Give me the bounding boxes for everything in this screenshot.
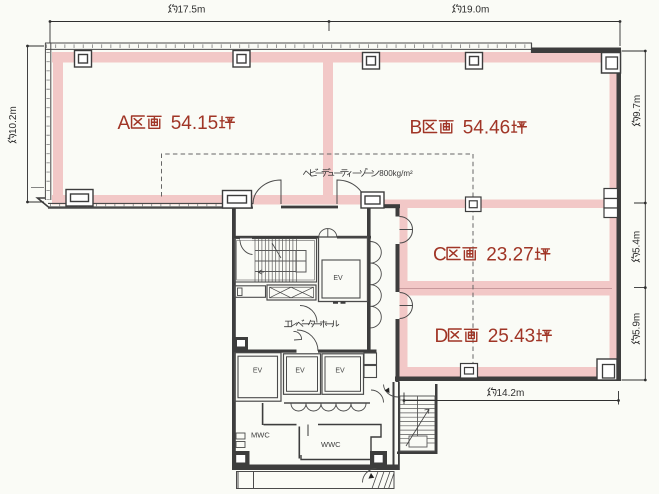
svg-text:19.0m: 19.0m [462,4,490,15]
svg-text:EV: EV [333,275,343,282]
svg-text:17.5m: 17.5m [178,4,206,15]
svg-text:800kg/m²: 800kg/m² [379,169,413,178]
svg-text:54.46: 54.46 [463,118,511,139]
svg-text:B: B [410,118,423,139]
svg-text:A: A [118,113,131,134]
svg-text:MWC: MWC [251,431,270,440]
svg-text:EV: EV [295,368,305,375]
svg-text:9.7m: 9.7m [632,95,643,117]
svg-text:25.43: 25.43 [488,326,536,347]
svg-text:C: C [433,245,447,266]
svg-text:10.2m: 10.2m [8,106,19,134]
svg-text:D: D [435,326,449,347]
svg-text:54.15: 54.15 [171,113,219,134]
svg-text:14.2m: 14.2m [497,388,525,399]
svg-text:23.27: 23.27 [486,245,534,266]
svg-text:5.4m: 5.4m [632,231,643,253]
svg-text:WWC: WWC [321,440,341,449]
svg-text:EV: EV [335,368,345,375]
svg-text:EV: EV [253,368,263,375]
svg-text:5.9m: 5.9m [632,313,643,335]
